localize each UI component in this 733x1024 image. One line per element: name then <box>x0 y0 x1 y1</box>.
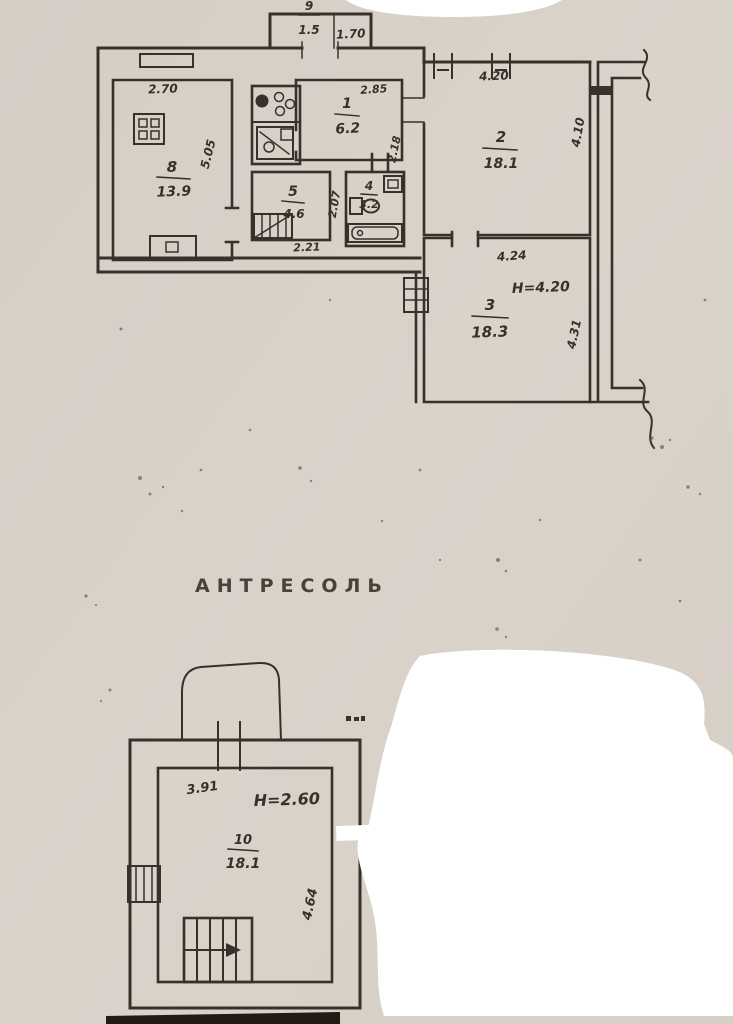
fraction-bar <box>361 194 377 195</box>
room-10-area: 18.1 <box>226 856 261 872</box>
room-3-number: 3 <box>485 296 495 314</box>
room-1-number: 1 <box>342 96 352 112</box>
redaction-blob-right <box>358 650 733 1016</box>
room-3-top-dim: 4.24 <box>495 248 527 264</box>
room-4-area: 3.2 <box>359 198 379 211</box>
room-2-area: 18.1 <box>484 156 519 172</box>
room-10-number: 10 <box>234 833 252 848</box>
redaction-sliver <box>336 825 376 841</box>
room-8-area: 13.9 <box>156 183 191 200</box>
room-5-area: 4.6 <box>282 207 304 221</box>
room-3-area: 18.3 <box>471 322 509 341</box>
room-4-number: 4 <box>364 179 373 193</box>
room-2-top-dim: 4.20 <box>478 68 509 83</box>
room-8-top-dim: 2.70 <box>148 81 178 96</box>
room-5-number: 5 <box>288 184 298 200</box>
scanned-floor-plan-page: 9 1.5 1.70 2.70 5.05 8 13.9 1 6.2 2.85 2… <box>0 0 733 1024</box>
mezzanine-section-label: АНТРЕСОЛЬ <box>195 575 389 597</box>
room-10-height-note: H=2.60 <box>253 789 320 810</box>
room-3-height-note: H=4.20 <box>512 279 571 297</box>
room-1-area: 6.2 <box>335 120 361 137</box>
room-1-top-dim: 2.85 <box>360 82 388 97</box>
room-8-number: 8 <box>167 158 177 176</box>
vestibule-number: 9 <box>305 0 313 13</box>
vestibule-width-dim: 1.70 <box>336 26 366 42</box>
floor-plan-drawing: 9 1.5 1.70 2.70 5.05 8 13.9 1 6.2 2.85 2… <box>0 0 733 1024</box>
room-5-bottom-dim: 2.21 <box>293 241 321 255</box>
wall-fill-segment <box>590 86 612 95</box>
vestibule-area: 1.5 <box>298 23 319 37</box>
room-2-number: 2 <box>496 128 506 146</box>
